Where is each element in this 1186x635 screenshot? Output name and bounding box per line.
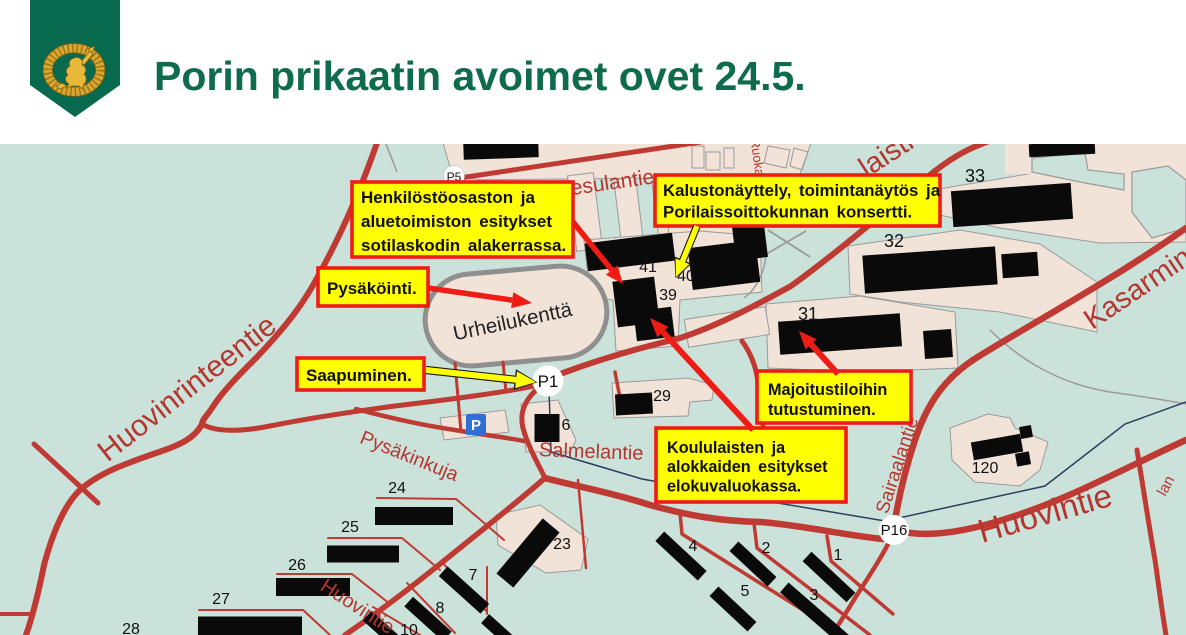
svg-text:Kalustonäyttely, toimintanäytö: Kalustonäyttely, toimintanäytös ja [663, 181, 941, 200]
svg-text:Saapuminen.: Saapuminen. [306, 366, 412, 385]
svg-text:P1: P1 [538, 372, 559, 391]
svg-text:29: 29 [653, 388, 671, 405]
svg-text:39: 39 [659, 287, 677, 304]
svg-text:10: 10 [400, 622, 418, 635]
svg-text:26: 26 [288, 557, 306, 574]
svg-text:elokuvaluokassa.: elokuvaluokassa. [667, 477, 801, 495]
svg-text:28: 28 [122, 621, 140, 635]
svg-text:120: 120 [972, 460, 999, 477]
svg-text:Salmelantie: Salmelantie [539, 439, 644, 465]
svg-text:Pysäköinti.: Pysäköinti. [327, 279, 417, 298]
svg-text:P: P [471, 417, 481, 434]
svg-text:25: 25 [341, 519, 359, 536]
svg-text:41: 41 [639, 259, 657, 276]
svg-text:23: 23 [553, 536, 571, 553]
svg-text:sotilaskodin alakerrassa.: sotilaskodin alakerrassa. [361, 236, 566, 255]
svg-text:33: 33 [965, 166, 985, 186]
svg-text:Koululaisten ja: Koululaisten ja [667, 439, 786, 457]
svg-text:27: 27 [212, 591, 230, 608]
svg-text:4: 4 [689, 538, 698, 555]
svg-text:Henkilöstöosaston ja: Henkilöstöosaston ja [361, 188, 536, 207]
svg-text:8: 8 [436, 600, 445, 617]
svg-text:7: 7 [469, 567, 478, 584]
svg-text:aluetoimiston esitykset: aluetoimiston esitykset [361, 212, 552, 231]
svg-text:31: 31 [798, 304, 818, 324]
svg-text:P16: P16 [881, 522, 908, 539]
svg-text:6: 6 [562, 417, 571, 434]
svg-text:Porilaissoittokunnan konsertti: Porilaissoittokunnan konsertti. [663, 203, 912, 222]
svg-text:32: 32 [884, 231, 904, 251]
svg-text:alokkaiden esitykset: alokkaiden esitykset [667, 458, 828, 476]
svg-text:5: 5 [741, 583, 750, 600]
svg-text:2: 2 [762, 540, 771, 557]
svg-text:3: 3 [810, 587, 819, 604]
svg-text:1: 1 [834, 547, 843, 564]
svg-text:tutustuminen.: tutustuminen. [768, 401, 876, 419]
svg-text:24: 24 [388, 480, 406, 497]
svg-text:Majoitustiloihin: Majoitustiloihin [768, 381, 887, 399]
